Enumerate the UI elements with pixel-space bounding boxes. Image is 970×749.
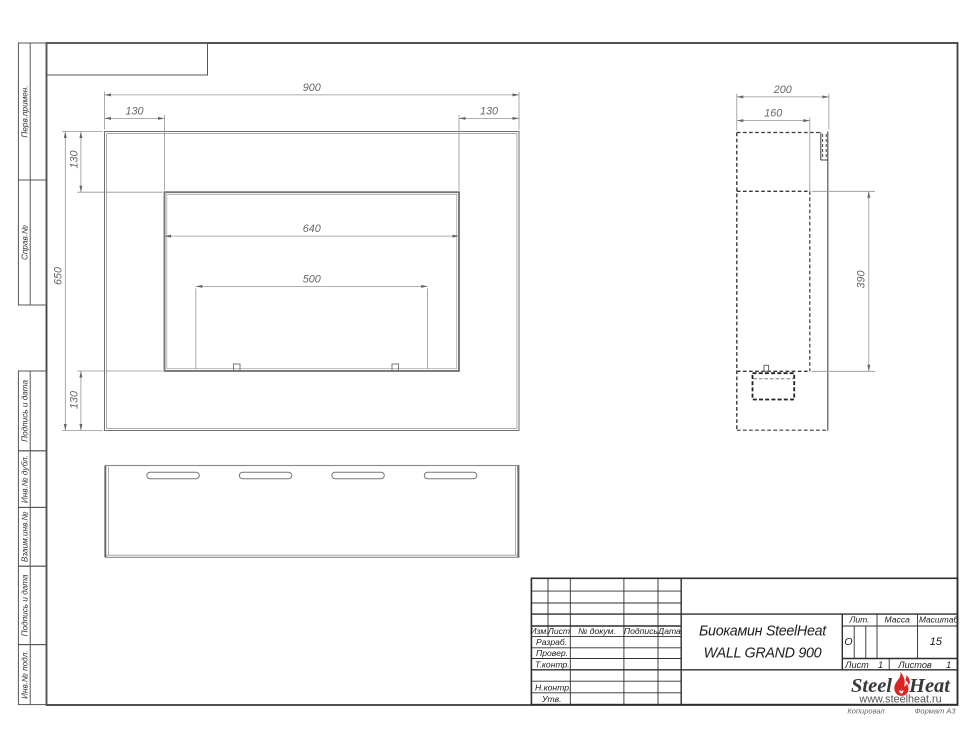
svg-text:Инв.№ подл.: Инв.№ подл. — [20, 650, 29, 699]
svg-text:№ докум.: № докум. — [578, 626, 616, 636]
svg-text:Лит.: Лит. — [848, 614, 869, 624]
svg-text:Формат А3: Формат А3 — [914, 707, 956, 716]
svg-text:Лист: Лист — [547, 626, 570, 636]
svg-text:Разраб.: Разраб. — [536, 637, 567, 647]
svg-text:www.steelheat.ru: www.steelheat.ru — [858, 694, 941, 706]
svg-text:WALL GRAND 900: WALL GRAND 900 — [704, 645, 822, 661]
svg-text:Копировал: Копировал — [847, 707, 885, 716]
svg-text:Провер.: Провер. — [536, 648, 568, 658]
svg-text:Масса: Масса — [884, 614, 910, 624]
svg-text:Листов: Листов — [897, 660, 932, 670]
svg-text:Изм.: Изм. — [530, 626, 548, 636]
svg-text:1: 1 — [878, 660, 883, 670]
svg-text:Масштаб: Масштаб — [919, 614, 958, 624]
svg-text:Подпись: Подпись — [624, 626, 659, 636]
svg-text:200: 200 — [773, 84, 792, 96]
svg-text:Взаим.инв.№: Взаим.инв.№ — [20, 511, 29, 562]
svg-text:Т.контр.: Т.контр. — [535, 660, 570, 670]
svg-text:Перв.примен.: Перв.примен. — [20, 85, 29, 137]
svg-text:1: 1 — [946, 660, 951, 670]
svg-text:О: О — [844, 636, 852, 648]
svg-text:390: 390 — [856, 270, 868, 288]
svg-text:Н.контр.: Н.контр. — [535, 683, 571, 693]
svg-text:130: 130 — [125, 106, 143, 118]
svg-text:130: 130 — [480, 106, 498, 118]
svg-text:Подпись и дата: Подпись и дата — [20, 379, 29, 441]
svg-text:650: 650 — [53, 267, 65, 285]
svg-text:Утв.: Утв. — [541, 694, 562, 704]
svg-text:Подпись и дата: Подпись и дата — [20, 574, 29, 636]
svg-text:640: 640 — [303, 223, 321, 235]
svg-text:Лист: Лист — [844, 660, 869, 670]
svg-text:130: 130 — [68, 391, 80, 409]
svg-text:Инв.№ дубл.: Инв.№ дубл. — [20, 455, 29, 503]
svg-text:160: 160 — [764, 108, 782, 120]
svg-text:130: 130 — [68, 150, 80, 168]
svg-text:900: 900 — [303, 82, 321, 94]
svg-text:Дата: Дата — [657, 626, 681, 636]
svg-text:15: 15 — [930, 636, 943, 648]
svg-text:Биокамин SteelHeat: Биокамин SteelHeat — [699, 623, 827, 639]
svg-text:500: 500 — [303, 274, 321, 286]
svg-text:Справ.№: Справ.№ — [20, 225, 29, 260]
